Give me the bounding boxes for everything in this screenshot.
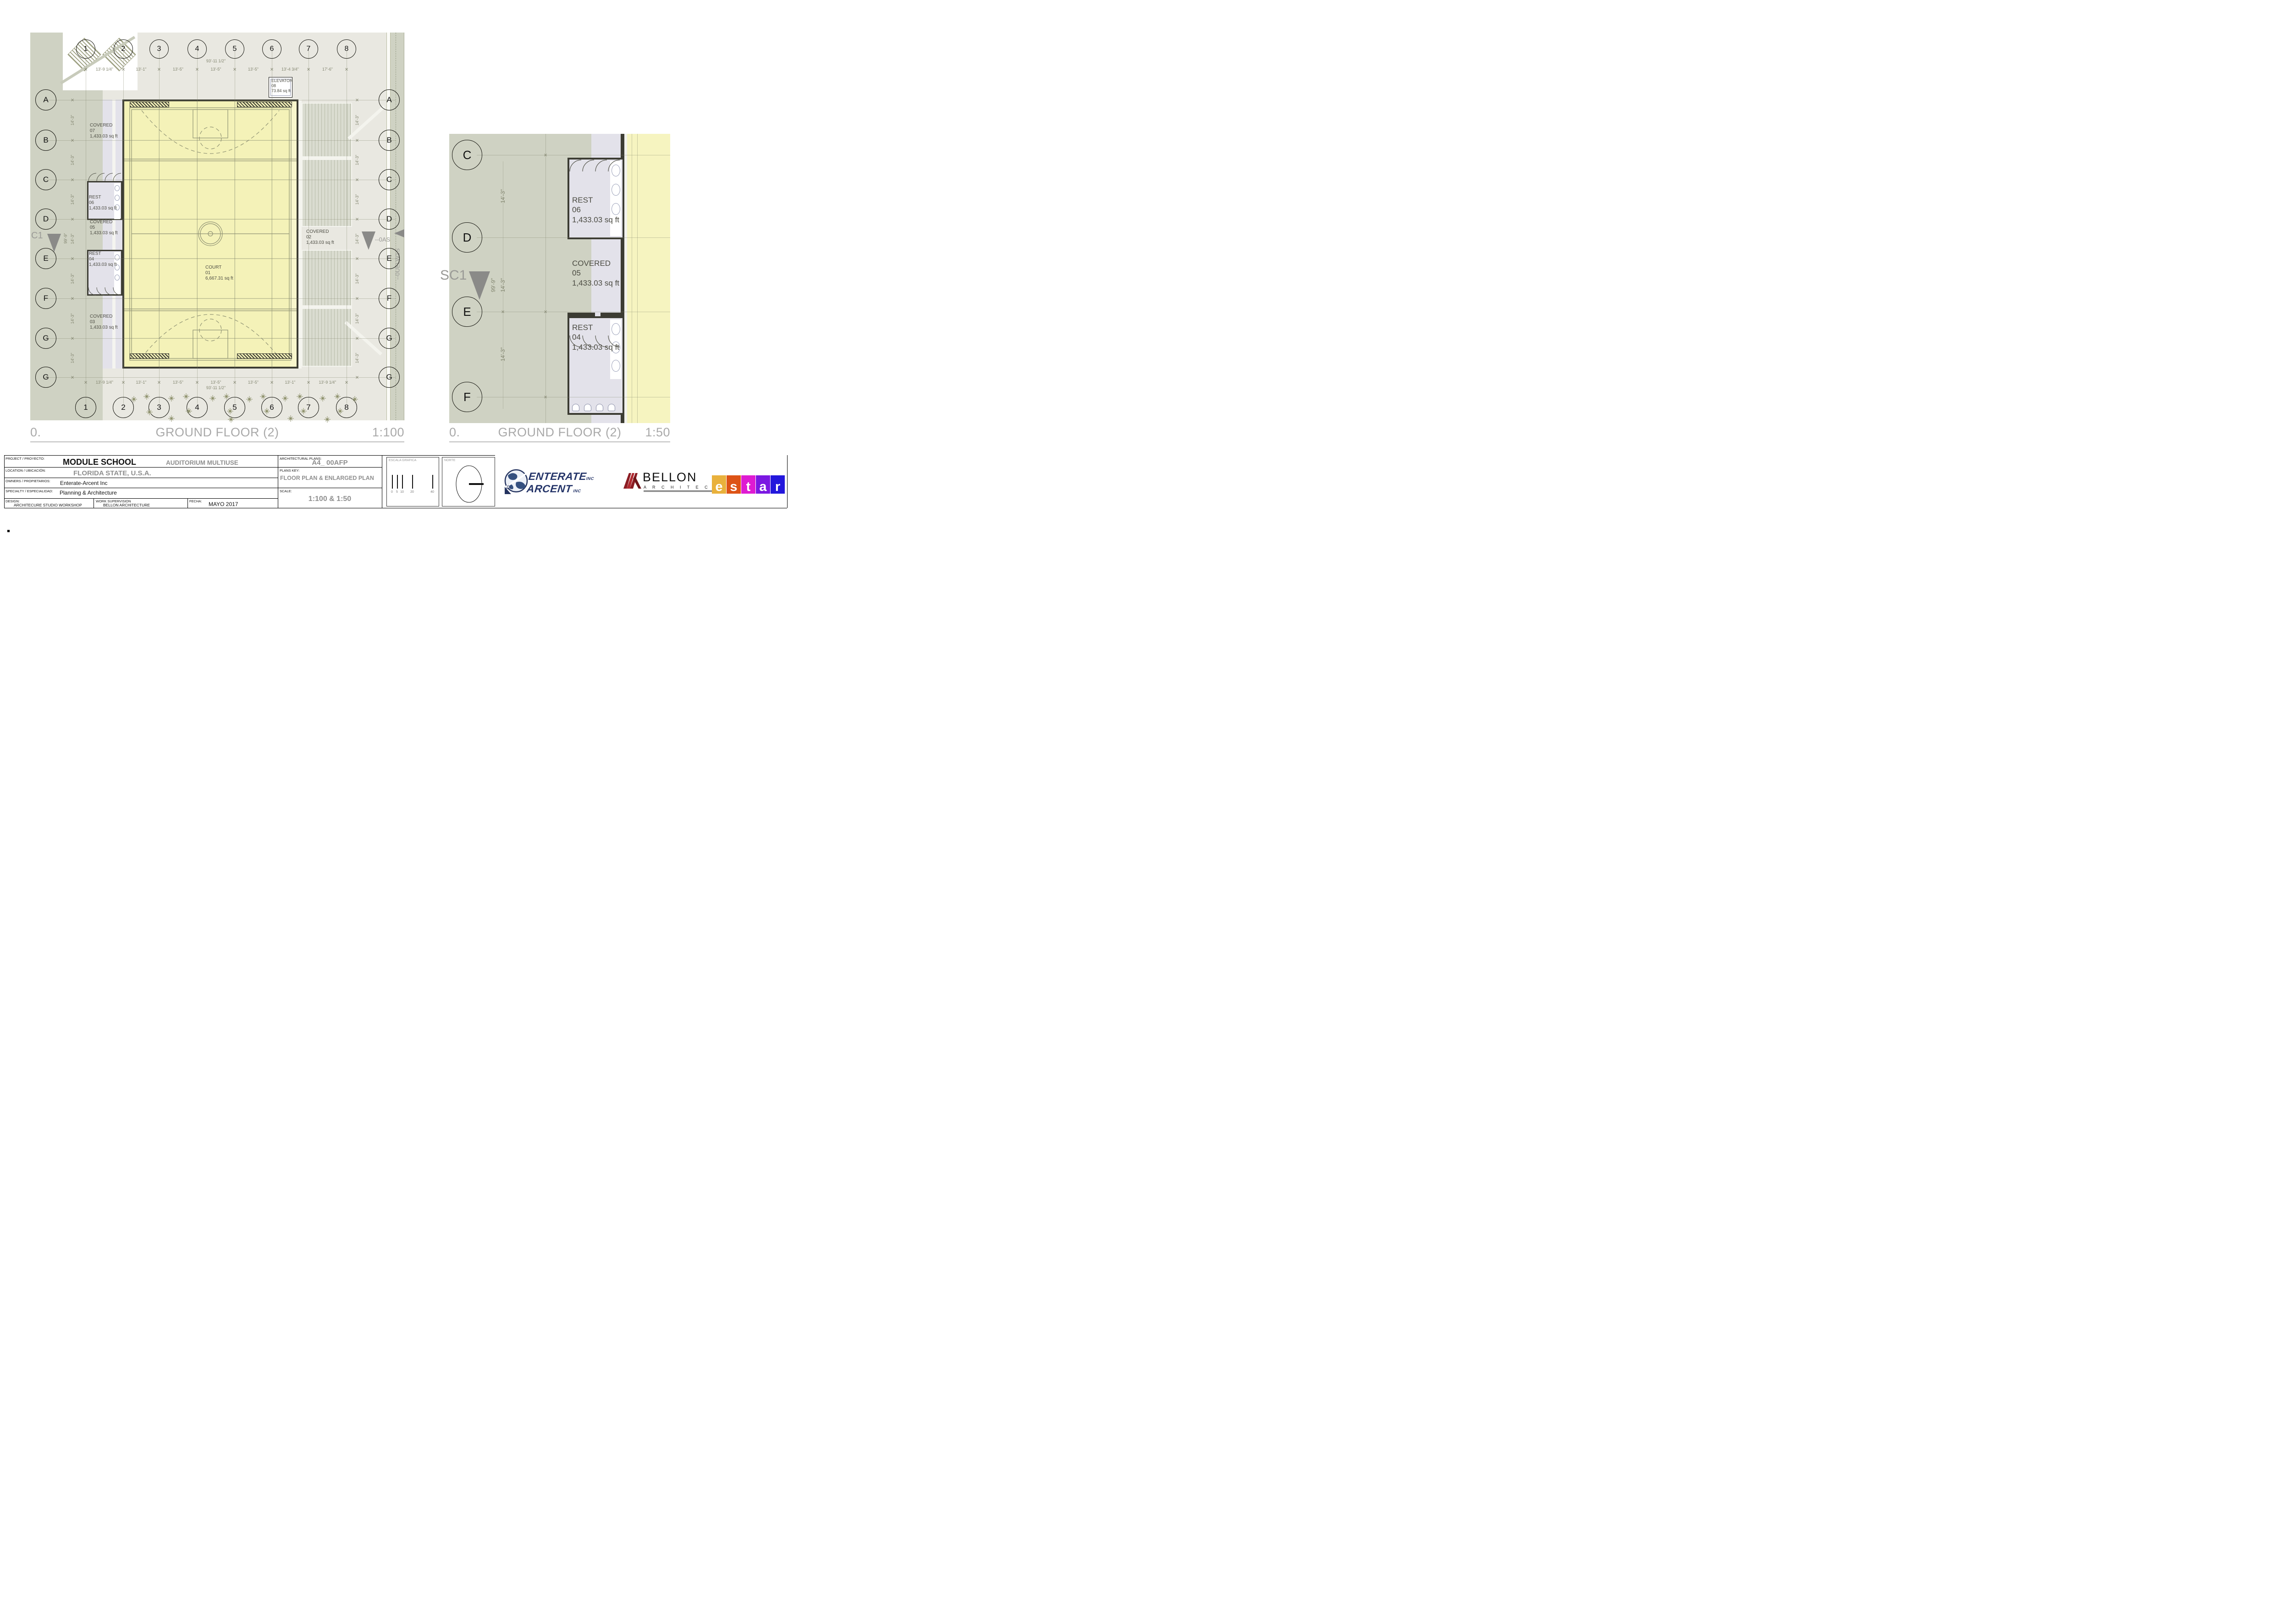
dim-bay-right-4: 14'-3" bbox=[355, 273, 359, 284]
scale-bar: 05102040 bbox=[387, 457, 440, 507]
dim-overall: 99'-9" bbox=[490, 278, 496, 292]
dim-bay-right-3: 14'-3" bbox=[355, 234, 359, 244]
grid-line-horizontal bbox=[43, 298, 396, 299]
grid-tick: × bbox=[71, 97, 74, 103]
estar-letter-r: r bbox=[771, 475, 785, 494]
grid-bubble-col-top-5: 5 bbox=[225, 39, 244, 59]
enlarged-caption-scale: 1:50 bbox=[449, 425, 670, 440]
dim-overall-top: 93'-11 1/2" bbox=[206, 59, 226, 63]
enterate-wordmark: ENTERATEINC bbox=[528, 470, 595, 483]
room-label-elevator: ELEVATOR 08 73.84 sq ft bbox=[271, 78, 293, 94]
owners-label: OWNERS / PROPIETARIOS: bbox=[6, 479, 50, 483]
grid-line-vertical bbox=[347, 51, 347, 404]
enterate-arcent-logo: ENTERATEINC ARCENT INC bbox=[504, 468, 618, 500]
grid-tick: × bbox=[544, 394, 547, 400]
estar-letter-e: e bbox=[712, 475, 726, 494]
specialty-value: Planning & Architecture bbox=[60, 490, 117, 496]
grid-line-horizontal bbox=[43, 259, 396, 259]
grid-bubble-row-right-D-3: D bbox=[379, 209, 400, 230]
tree-icon bbox=[263, 407, 270, 415]
tree-icon bbox=[336, 407, 344, 415]
dim-top-1: 13'-1" bbox=[136, 67, 147, 72]
dim-bottom-0: 13'-9 1/4" bbox=[96, 380, 113, 385]
section-marker-sc1-icon bbox=[469, 271, 490, 300]
grid-tick: × bbox=[71, 138, 74, 143]
dim-bottom-5: 13'-1" bbox=[285, 380, 296, 385]
room-label-covered05: COVERED051,433.03 sq ft bbox=[572, 259, 619, 288]
stage-hatch bbox=[237, 102, 292, 107]
bellon-logo: BELLON A R C H I T E C T U R E bbox=[623, 470, 710, 499]
grid-bubble-col-top-7: 7 bbox=[299, 39, 318, 59]
dim-bottom-4: 13'-5" bbox=[248, 380, 259, 385]
scale-tick-label: 0 bbox=[391, 490, 393, 494]
supervision-value: BELLON ARCHITECTURE bbox=[103, 503, 150, 507]
grid-tick: × bbox=[233, 66, 237, 72]
tree-icon bbox=[296, 393, 303, 400]
grid-tick: × bbox=[84, 380, 88, 385]
dim-top-4: 13'-5" bbox=[248, 67, 259, 72]
tree-icon bbox=[182, 393, 190, 400]
grid-bubble-row-E: E bbox=[452, 297, 482, 327]
tree-icon bbox=[168, 395, 175, 402]
grid-line-vertical bbox=[309, 51, 309, 404]
arcent-wordmark: ARCENT INC bbox=[526, 483, 582, 495]
grid-line-vertical bbox=[123, 51, 124, 404]
grid-tick: × bbox=[71, 336, 74, 341]
grid-tick: × bbox=[345, 380, 348, 385]
grid-line-vertical bbox=[272, 51, 272, 404]
grid-line-horizontal bbox=[43, 377, 396, 378]
grid-tick: × bbox=[544, 152, 547, 158]
scale-tick-label: 5 bbox=[396, 490, 398, 494]
sheet-dot bbox=[7, 530, 10, 532]
grid-line-horizontal bbox=[43, 180, 396, 180]
grid-bubble-col-top-6: 6 bbox=[262, 39, 281, 59]
grid-bubble-row-left-G-6: G bbox=[35, 328, 56, 349]
grid-tick: × bbox=[71, 216, 74, 222]
project-label: PROJECT / PROYECTO: bbox=[6, 457, 44, 461]
grid-tick: × bbox=[71, 177, 74, 183]
bellon-wordmark: BELLON bbox=[643, 470, 697, 484]
dim-bay-right-6: 14'-3" bbox=[355, 352, 359, 363]
grid-tick: × bbox=[121, 380, 125, 385]
dim-bay-left-5: 14'-3" bbox=[70, 313, 75, 324]
grid-line-horizontal bbox=[43, 100, 396, 100]
main-caption-scale: 1:100 bbox=[30, 425, 404, 440]
estar-letter-t: t bbox=[741, 475, 755, 494]
dim-top-3: 13'-5" bbox=[211, 67, 221, 72]
tree-icon bbox=[226, 407, 234, 415]
main-floor-plan: ELEVATOR 08 73.84 sq ft COVERED071,433.0… bbox=[30, 33, 404, 420]
dim-bay-right-5: 14'-3" bbox=[355, 313, 359, 324]
tree-icon bbox=[227, 416, 235, 423]
north-arrow-icon bbox=[452, 462, 487, 504]
grid-line-vertical bbox=[235, 51, 235, 404]
grid-line-horizontal bbox=[43, 219, 396, 220]
grid-tick: × bbox=[157, 66, 161, 72]
room-label-rest06: REST061,433.03 sq ft bbox=[89, 195, 117, 212]
urinal-fixtures bbox=[572, 404, 620, 411]
grid-tick: × bbox=[355, 216, 359, 222]
drawing-sheet: ELEVATOR 08 73.84 sq ft COVERED071,433.0… bbox=[0, 0, 812, 541]
grid-bubble-col-top-2: 2 bbox=[114, 39, 133, 59]
specialty-label: SPECIALTY / ESPECIALIDAD: bbox=[6, 489, 53, 493]
grid-tick: × bbox=[355, 177, 359, 183]
scale-tick bbox=[397, 475, 398, 489]
plans-code: A4_ 00AFP bbox=[278, 459, 382, 467]
grid-tick: × bbox=[71, 256, 74, 262]
grid-tick: × bbox=[270, 66, 274, 72]
estar-logo: estar bbox=[712, 475, 785, 494]
tree-icon bbox=[130, 396, 138, 403]
grid-bubble-row-left-B-1: B bbox=[35, 130, 56, 151]
scale-tick bbox=[412, 475, 413, 489]
grid-tick: × bbox=[71, 296, 74, 302]
grid-line-horizontal bbox=[43, 140, 396, 141]
grid-line-vertical bbox=[197, 51, 198, 404]
door-swing-icons bbox=[569, 160, 621, 171]
tree-icon bbox=[259, 393, 267, 400]
tree-icon bbox=[281, 395, 289, 402]
grid-line-vertical bbox=[159, 51, 160, 404]
tree-icon bbox=[319, 395, 326, 402]
enlarged-floor-plan: REST061,433.03 sq ft COVERED051,433.03 s… bbox=[449, 134, 670, 423]
door-swing-icons bbox=[88, 287, 122, 296]
grid-tick: × bbox=[307, 380, 310, 385]
caption-underline bbox=[449, 441, 670, 442]
dim-top-2: 13'-5" bbox=[173, 67, 183, 72]
road-edge bbox=[404, 33, 404, 420]
grid-bubble-row-left-E-4: E bbox=[35, 248, 56, 269]
dim-bay-bottom: 14'-3" bbox=[500, 347, 506, 362]
grid-tick: × bbox=[195, 66, 199, 72]
dim-overall-left: 99'-9" bbox=[63, 233, 68, 244]
location-value: FLORIDA STATE, U.S.A. bbox=[73, 469, 151, 477]
grid-bubble-row-F: F bbox=[452, 382, 482, 412]
grid-line-horizontal bbox=[477, 155, 670, 155]
grid-tick: × bbox=[501, 309, 505, 315]
tree-icon bbox=[143, 393, 150, 400]
project-name: MODULE SCHOOL bbox=[63, 457, 136, 467]
grid-tick: × bbox=[195, 380, 199, 385]
section-marker-sc1-label: SC1 bbox=[440, 268, 467, 283]
dim-bay-top: 14'-3" bbox=[500, 189, 506, 204]
grid-line-horizontal bbox=[43, 338, 396, 339]
stage-hatch bbox=[130, 353, 169, 359]
stands-walkway bbox=[302, 305, 352, 309]
dim-overall-bottom: 93'-11 1/2" bbox=[206, 385, 226, 390]
scale-value: 1:100 & 1:50 bbox=[278, 495, 382, 503]
grid-bubble-row-right-E-4: E bbox=[379, 248, 400, 269]
tree-icon bbox=[185, 407, 193, 415]
grid-bubble-row-right-F-5: F bbox=[379, 288, 400, 309]
grid-bubble-row-left-F-5: F bbox=[35, 288, 56, 309]
grid-tick: × bbox=[270, 380, 274, 385]
plans-key-value: FLOOR PLAN & ENLARGED PLAN bbox=[280, 475, 374, 481]
stands-walkway bbox=[302, 156, 352, 160]
grid-bubble-row-C: C bbox=[452, 140, 482, 170]
tree-icon bbox=[223, 393, 230, 400]
grid-bubble-col-top-3: 3 bbox=[149, 39, 169, 59]
grid-bubble-col-top-4: 4 bbox=[187, 39, 207, 59]
dim-bay-left-2: 14'-3" bbox=[70, 194, 75, 205]
tree-icon bbox=[209, 395, 216, 402]
grid-tick: × bbox=[355, 256, 359, 262]
grid-tick: × bbox=[355, 296, 359, 302]
room-label-court: COURT016,667.31 sq ft bbox=[205, 265, 233, 282]
wall-stub bbox=[601, 313, 621, 316]
wall-stub bbox=[567, 313, 595, 316]
grid-line-horizontal bbox=[477, 237, 670, 238]
location-label: LOCATION / UBICACIÓN: bbox=[6, 468, 46, 473]
grid-tick: × bbox=[233, 380, 237, 385]
dim-bay-left-3: 14'-3" bbox=[70, 234, 75, 244]
dim-bottom-3: 13'-5" bbox=[211, 380, 221, 385]
estar-letter-s: s bbox=[727, 475, 741, 494]
grid-bubble-row-right-B-1: B bbox=[379, 130, 400, 151]
room-label-rest04: REST041,433.03 sq ft bbox=[89, 251, 117, 268]
bleachers-top bbox=[302, 103, 352, 227]
owners-value: Enterate-Arcent Inc bbox=[60, 480, 107, 486]
plans-key-label: PLANS KEY: bbox=[280, 468, 299, 473]
norte-label: NORTE bbox=[444, 459, 455, 462]
tree-icon bbox=[168, 415, 175, 422]
tree-icon bbox=[246, 396, 253, 403]
dim-top-5: 13'-4 3/4" bbox=[281, 67, 299, 72]
grid-bubble-row-right-A-0: A bbox=[379, 89, 400, 110]
dim-bay-left-1: 14'-3" bbox=[70, 155, 75, 165]
tree-icon bbox=[351, 396, 358, 403]
tree-icon bbox=[334, 393, 341, 400]
room-label-covered05: COVERED051,433.03 sq ft bbox=[90, 220, 118, 237]
dim-bay-right-2: 14'-3" bbox=[355, 194, 359, 205]
grid-tick: × bbox=[84, 66, 88, 72]
grid-bubble-row-D: D bbox=[452, 222, 482, 253]
estar-letter-a: a bbox=[756, 475, 770, 494]
grid-bubble-col-top-1: 1 bbox=[76, 39, 95, 59]
scale-tick-label: 20 bbox=[410, 490, 414, 494]
grid-bubble-row-left-C-2: C bbox=[35, 169, 56, 190]
grid-bubble-row-left-A-0: A bbox=[35, 89, 56, 110]
date-value: MAYO 2017 bbox=[209, 501, 238, 507]
section-marker-right-icon bbox=[362, 231, 375, 250]
scale-tick bbox=[392, 475, 393, 489]
room-label-covered02: COVERED021,433.03 sq ft bbox=[306, 229, 334, 246]
grid-tick: × bbox=[355, 374, 359, 380]
grid-tick: × bbox=[355, 138, 359, 143]
dim-top-6: 17'-6" bbox=[322, 67, 333, 72]
grid-tick: × bbox=[121, 66, 125, 72]
date-label: FECHA: bbox=[189, 499, 202, 503]
design-value: ARCHITECURE STUDIO WORKSHOP bbox=[14, 503, 82, 507]
room-label-covered07: COVERED071,433.03 sq ft bbox=[90, 123, 118, 140]
project-subname: AUDITORIUM MULTIUSE bbox=[166, 459, 238, 466]
grid-bubble-row-right-C-2: C bbox=[379, 169, 400, 190]
section-marker-c1-label: C1 bbox=[31, 231, 43, 241]
grid-line-horizontal bbox=[477, 397, 670, 397]
scale-label: SCALE: bbox=[280, 489, 292, 493]
dim-bay-mid: 14'-3" bbox=[500, 278, 506, 292]
grid-line-vertical bbox=[86, 51, 86, 404]
dim-bay-right-0: 14'-3" bbox=[355, 115, 359, 126]
dim-bottom-6: 13'-9 1/4" bbox=[319, 380, 336, 385]
grid-tick: × bbox=[345, 66, 348, 72]
road-label-horizontal: --0AS bbox=[375, 236, 390, 243]
grid-bubble-col-bottom-1: 1 bbox=[75, 397, 96, 418]
grid-tick: × bbox=[307, 66, 310, 72]
grid-line-horizontal bbox=[477, 312, 670, 312]
road-arrow-icon bbox=[394, 229, 404, 237]
north-box: NORTE bbox=[442, 457, 495, 506]
scale-tick-label: 10 bbox=[400, 490, 404, 494]
grid-tick: × bbox=[355, 336, 359, 341]
globe-icon bbox=[504, 468, 529, 494]
dim-bottom-2: 13'-5" bbox=[173, 380, 183, 385]
dim-bay-left-4: 14'-3" bbox=[70, 273, 75, 284]
graphic-scale-box: ESCALA GRAFICA 05102040 bbox=[386, 457, 439, 506]
grid-tick: × bbox=[71, 374, 74, 380]
room-label-rest06: REST061,433.03 sq ft bbox=[572, 195, 619, 225]
dim-top-0: 13'-9 1/4" bbox=[96, 67, 113, 72]
dim-bottom-1: 13'-1" bbox=[136, 380, 147, 385]
grid-bubble-row-right-G-7: G bbox=[379, 367, 400, 388]
grid-bubble-col-top-8: 8 bbox=[337, 39, 356, 59]
grid-tick: × bbox=[157, 380, 161, 385]
dim-bay-right-1: 14'-3" bbox=[355, 155, 359, 165]
tree-icon bbox=[300, 407, 307, 415]
court-edge-zone bbox=[627, 134, 670, 423]
grid-bubble-row-left-D-3: D bbox=[35, 209, 56, 230]
tree-icon bbox=[146, 408, 153, 416]
tree-icon bbox=[287, 415, 294, 422]
scale-tick-label: 40 bbox=[430, 490, 434, 494]
scale-tick bbox=[402, 475, 403, 489]
stage-hatch bbox=[130, 102, 169, 107]
room-label-rest04: REST041,433.03 sq ft bbox=[572, 323, 619, 352]
room-label-covered03: COVERED031,433.03 sq ft bbox=[90, 314, 118, 331]
dim-bay-left-0: 14'-3" bbox=[70, 115, 75, 126]
dim-bay-left-6: 14'-3" bbox=[70, 352, 75, 363]
stage-hatch bbox=[237, 353, 292, 359]
tree-icon bbox=[324, 416, 331, 423]
scale-tick bbox=[432, 475, 433, 489]
court-markings bbox=[124, 101, 297, 367]
caption-underline bbox=[30, 441, 404, 442]
grid-bubble-row-right-G-6: G bbox=[379, 328, 400, 349]
grid-tick: × bbox=[544, 309, 547, 315]
grid-tick: × bbox=[355, 97, 359, 103]
grid-line-vertical bbox=[545, 134, 546, 423]
bellon-icon bbox=[623, 471, 644, 490]
grid-bubble-row-left-G-7: G bbox=[35, 367, 56, 388]
